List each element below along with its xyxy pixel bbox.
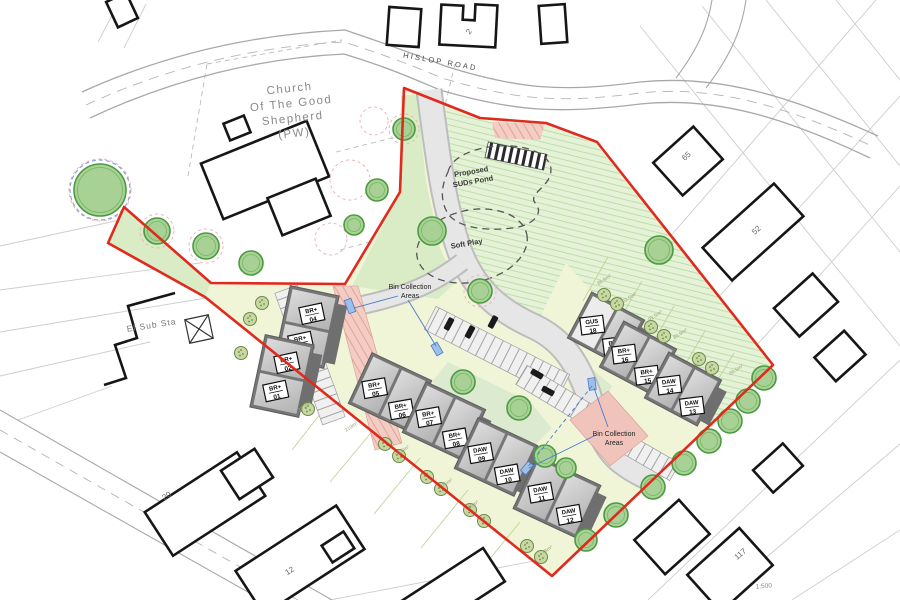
tree-symbol <box>736 389 760 413</box>
bin-label-north-line1: Bin Collection <box>389 284 432 291</box>
entrance-splay <box>492 122 545 140</box>
shrub-symbol <box>235 347 248 360</box>
plot-label: GUS18 <box>580 315 605 336</box>
tree-symbol <box>752 366 776 390</box>
shrub-symbol <box>693 353 706 366</box>
shrub-symbol <box>244 313 257 326</box>
substation-label: El Sub Sta <box>126 316 177 334</box>
plot-label: DAW13 <box>680 396 705 417</box>
substation-outline <box>104 293 175 385</box>
plot-number-label: 13 <box>689 409 697 417</box>
tree-symbol <box>451 370 475 394</box>
bin-label-north-line2: Areas <box>401 293 420 300</box>
plot-number-label: 15 <box>644 378 652 386</box>
tree-symbol <box>418 217 446 245</box>
shrub-symbol <box>598 289 611 302</box>
plot-number-label: 16 <box>621 356 629 364</box>
tree-symbol <box>507 396 531 420</box>
shrub-symbol <box>658 330 671 343</box>
church-building <box>201 116 331 236</box>
tree-symbol <box>468 279 492 303</box>
tree-symbol <box>344 215 364 235</box>
site-plan-canvas: BR+04BR+03BR+02BR+01BR+05BR+06BR+07BR+08… <box>0 0 900 600</box>
plot-number-label: 18 <box>589 327 597 335</box>
plot-label: BR+16 <box>612 344 637 365</box>
shrub-symbol <box>706 362 719 375</box>
tree-symbol <box>672 451 696 475</box>
shrub-symbol <box>256 297 269 310</box>
bin-label-south-line2: Areas <box>605 440 624 447</box>
site-plan: BR+04BR+03BR+02BR+01BR+05BR+06BR+07BR+08… <box>0 0 900 600</box>
church-label-line1: Church <box>266 81 313 98</box>
tree-symbol <box>556 458 576 478</box>
bin-label-south-line1: Bin Collection <box>593 431 636 438</box>
plot-label: DAW14 <box>657 375 682 396</box>
tree-symbol <box>239 251 263 275</box>
road-name-label: HISLOP ROAD <box>403 51 479 73</box>
church-label: Church Of The Good Shepherd (PW) <box>248 79 336 144</box>
shrub-symbol <box>521 540 534 553</box>
tree-symbol <box>575 529 597 551</box>
tree-symbol <box>74 164 126 216</box>
substation-symbol <box>185 315 213 343</box>
tree-symbol <box>193 233 219 259</box>
tree-symbol <box>366 179 388 201</box>
tree-symbol <box>144 218 170 244</box>
scale-label: 1:500 <box>755 582 772 590</box>
tree-symbol <box>645 236 673 264</box>
plot-number-label: 14 <box>666 387 674 395</box>
garden-area-label: 219m² <box>344 421 359 434</box>
